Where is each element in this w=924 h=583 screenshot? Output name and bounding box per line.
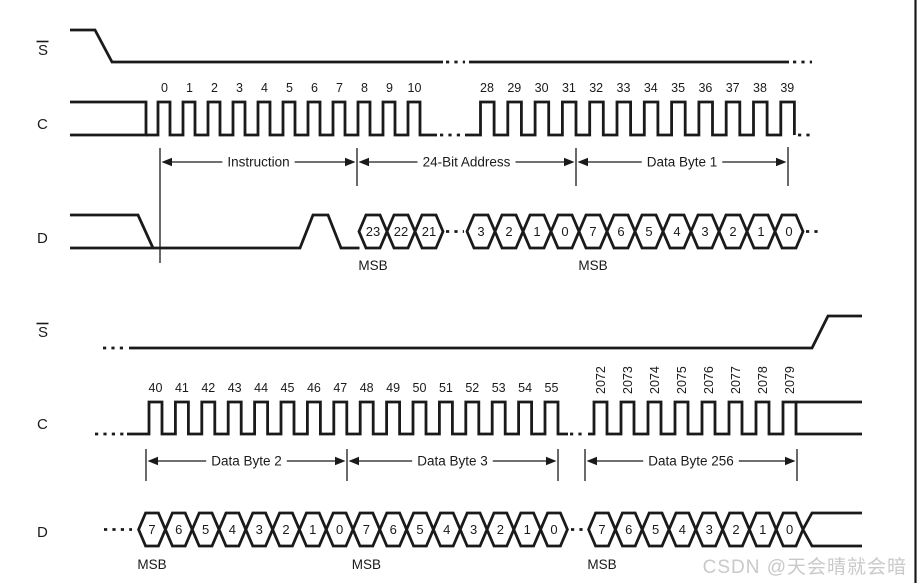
data-bit-value: 6 <box>175 522 182 537</box>
clock-number: 40 <box>149 381 163 395</box>
signal-label-clock-top: C <box>37 116 48 133</box>
clock-number: 49 <box>386 381 400 395</box>
clock-number-vertical: 2076 <box>702 366 716 394</box>
clock-number-vertical: 2072 <box>594 366 608 394</box>
clock-number-vertical: 2073 <box>621 366 635 394</box>
timing-diagram-figure: S C D S C D CSDN @天会晴就会暗 012345678910282… <box>0 0 924 583</box>
data-bit-value: 4 <box>443 522 450 537</box>
clock-number: 42 <box>201 381 215 395</box>
msb-label: MSB <box>587 557 616 572</box>
clock-number: 35 <box>671 81 685 95</box>
clock-number: 33 <box>617 81 631 95</box>
data-bit-value: 2 <box>732 522 739 537</box>
clock-number: 43 <box>228 381 242 395</box>
data-bit-value: 0 <box>336 522 343 537</box>
clock-number: 54 <box>518 381 532 395</box>
clock-number: 10 <box>408 81 422 95</box>
arrowhead-right-icon <box>785 457 796 466</box>
data-bit-value: 6 <box>617 224 624 239</box>
signal-label-clock-bottom: C <box>37 416 48 433</box>
clock-number: 7 <box>336 81 343 95</box>
clock-number-vertical: 2079 <box>783 366 797 394</box>
clock-number: 31 <box>562 81 576 95</box>
data-bit-value: 1 <box>757 224 764 239</box>
arrowhead-left-icon <box>148 457 159 466</box>
data-bit-value: 6 <box>390 522 397 537</box>
phase-label: Data Byte 3 <box>417 454 488 469</box>
signal-label-data-top: D <box>37 230 48 247</box>
clock-number: 1 <box>186 81 193 95</box>
data-bit-value: 3 <box>470 522 477 537</box>
clock-number: 45 <box>281 381 295 395</box>
clock-number: 30 <box>535 81 549 95</box>
data-bit-value: 2 <box>282 522 289 537</box>
arrowhead-right-icon <box>335 457 346 466</box>
clock-wave-top <box>465 102 794 135</box>
data-bit-value: 5 <box>202 522 209 537</box>
clock-wave-top-dontcare <box>70 102 146 135</box>
signal-label-select-top: S <box>38 42 48 59</box>
select-wave-bottom <box>129 316 862 348</box>
data-bit-value: 0 <box>550 522 557 537</box>
clock-number: 44 <box>254 381 268 395</box>
signal-label-select-bottom: S <box>38 324 48 341</box>
data-bit-value: 22 <box>394 224 408 239</box>
select-wave-top <box>70 30 443 62</box>
data-bit-value: 0 <box>561 224 568 239</box>
data-bit-value: 3 <box>477 224 484 239</box>
data-wave-bottom-open <box>803 513 862 530</box>
data-bit-value: 1 <box>759 522 766 537</box>
clock-number-vertical: 2075 <box>675 366 689 394</box>
data-bit-value: 5 <box>652 522 659 537</box>
clock-number: 6 <box>311 81 318 95</box>
clock-number: 36 <box>698 81 712 95</box>
data-bit-value: 2 <box>497 522 504 537</box>
data-bit-value: 2 <box>729 224 736 239</box>
data-bit-value: 23 <box>366 224 380 239</box>
clock-number: 38 <box>753 81 767 95</box>
phase-label: Data Byte 2 <box>211 454 282 469</box>
phase-label: 24-Bit Address <box>423 155 511 170</box>
clock-number: 37 <box>726 81 740 95</box>
data-wave-top <box>70 215 360 248</box>
clock-number-vertical: 2078 <box>756 366 770 394</box>
clock-number: 0 <box>161 81 168 95</box>
arrowhead-left-icon <box>587 457 598 466</box>
clock-wave-top <box>146 102 437 135</box>
data-wave-top <box>70 215 153 248</box>
arrowhead-right-icon <box>345 158 356 167</box>
clock-number-vertical: 2077 <box>729 366 743 394</box>
arrowhead-right-icon <box>564 158 575 167</box>
clock-number: 51 <box>439 381 453 395</box>
clock-number: 34 <box>644 81 658 95</box>
clock-number: 8 <box>361 81 368 95</box>
data-bit-value: 0 <box>785 224 792 239</box>
data-bit-value: 3 <box>256 522 263 537</box>
arrowhead-left-icon <box>578 158 589 167</box>
clock-number: 28 <box>480 81 494 95</box>
clock-number: 9 <box>386 81 393 95</box>
data-bit-value: 0 <box>786 522 793 537</box>
msb-label: MSB <box>137 557 166 572</box>
data-bit-value: 1 <box>309 522 316 537</box>
clock-number: 52 <box>465 381 479 395</box>
msb-label: MSB <box>578 258 607 273</box>
clock-number: 3 <box>236 81 243 95</box>
phase-label: Data Byte 256 <box>648 454 734 469</box>
clock-number: 50 <box>413 381 427 395</box>
phase-label: Instruction <box>227 155 289 170</box>
clock-wave-bottom <box>127 402 568 434</box>
data-bit-value: 6 <box>625 522 632 537</box>
data-bit-value: 7 <box>363 522 370 537</box>
clock-number: 39 <box>780 81 794 95</box>
timing-diagram-canvas: S C D S C D CSDN @天会晴就会暗 012345678910282… <box>0 0 924 583</box>
data-bit-value: 21 <box>422 224 436 239</box>
data-bit-value: 5 <box>645 224 652 239</box>
clock-wave-bottom <box>588 402 862 434</box>
data-bit-value: 3 <box>701 224 708 239</box>
clock-number: 53 <box>492 381 506 395</box>
clock-number: 5 <box>286 81 293 95</box>
phase-label: Data Byte 1 <box>647 155 718 170</box>
data-bit-value: 7 <box>148 522 155 537</box>
data-bit-value: 4 <box>673 224 680 239</box>
arrowhead-left-icon <box>349 457 360 466</box>
clock-number: 55 <box>545 381 559 395</box>
data-bit-value: 4 <box>229 522 236 537</box>
data-bit-value: 7 <box>598 522 605 537</box>
data-bit-value: 4 <box>679 522 686 537</box>
watermark-text: CSDN @天会晴就会暗 <box>703 556 907 578</box>
clock-number: 2 <box>211 81 218 95</box>
msb-label: MSB <box>352 557 381 572</box>
signal-label-data-bottom: D <box>37 524 48 541</box>
clock-number: 46 <box>307 381 321 395</box>
data-bit-value: 1 <box>533 224 540 239</box>
data-bit-value: 7 <box>589 224 596 239</box>
clock-number: 47 <box>333 381 347 395</box>
data-wave-bottom-open <box>803 530 862 547</box>
data-bit-value: 2 <box>505 224 512 239</box>
clock-number: 4 <box>261 81 268 95</box>
arrowhead-right-icon <box>546 457 557 466</box>
msb-label: MSB <box>358 258 387 273</box>
clock-number: 32 <box>589 81 603 95</box>
data-bit-value: 5 <box>416 522 423 537</box>
clock-number-vertical: 2074 <box>648 366 662 394</box>
clock-number: 48 <box>360 381 374 395</box>
arrowhead-left-icon <box>359 158 370 167</box>
arrowhead-left-icon <box>162 158 173 167</box>
arrowhead-right-icon <box>776 158 787 167</box>
clock-number: 29 <box>507 81 521 95</box>
clock-number: 41 <box>175 381 189 395</box>
data-bit-value: 1 <box>524 522 531 537</box>
data-bit-value: 3 <box>706 522 713 537</box>
